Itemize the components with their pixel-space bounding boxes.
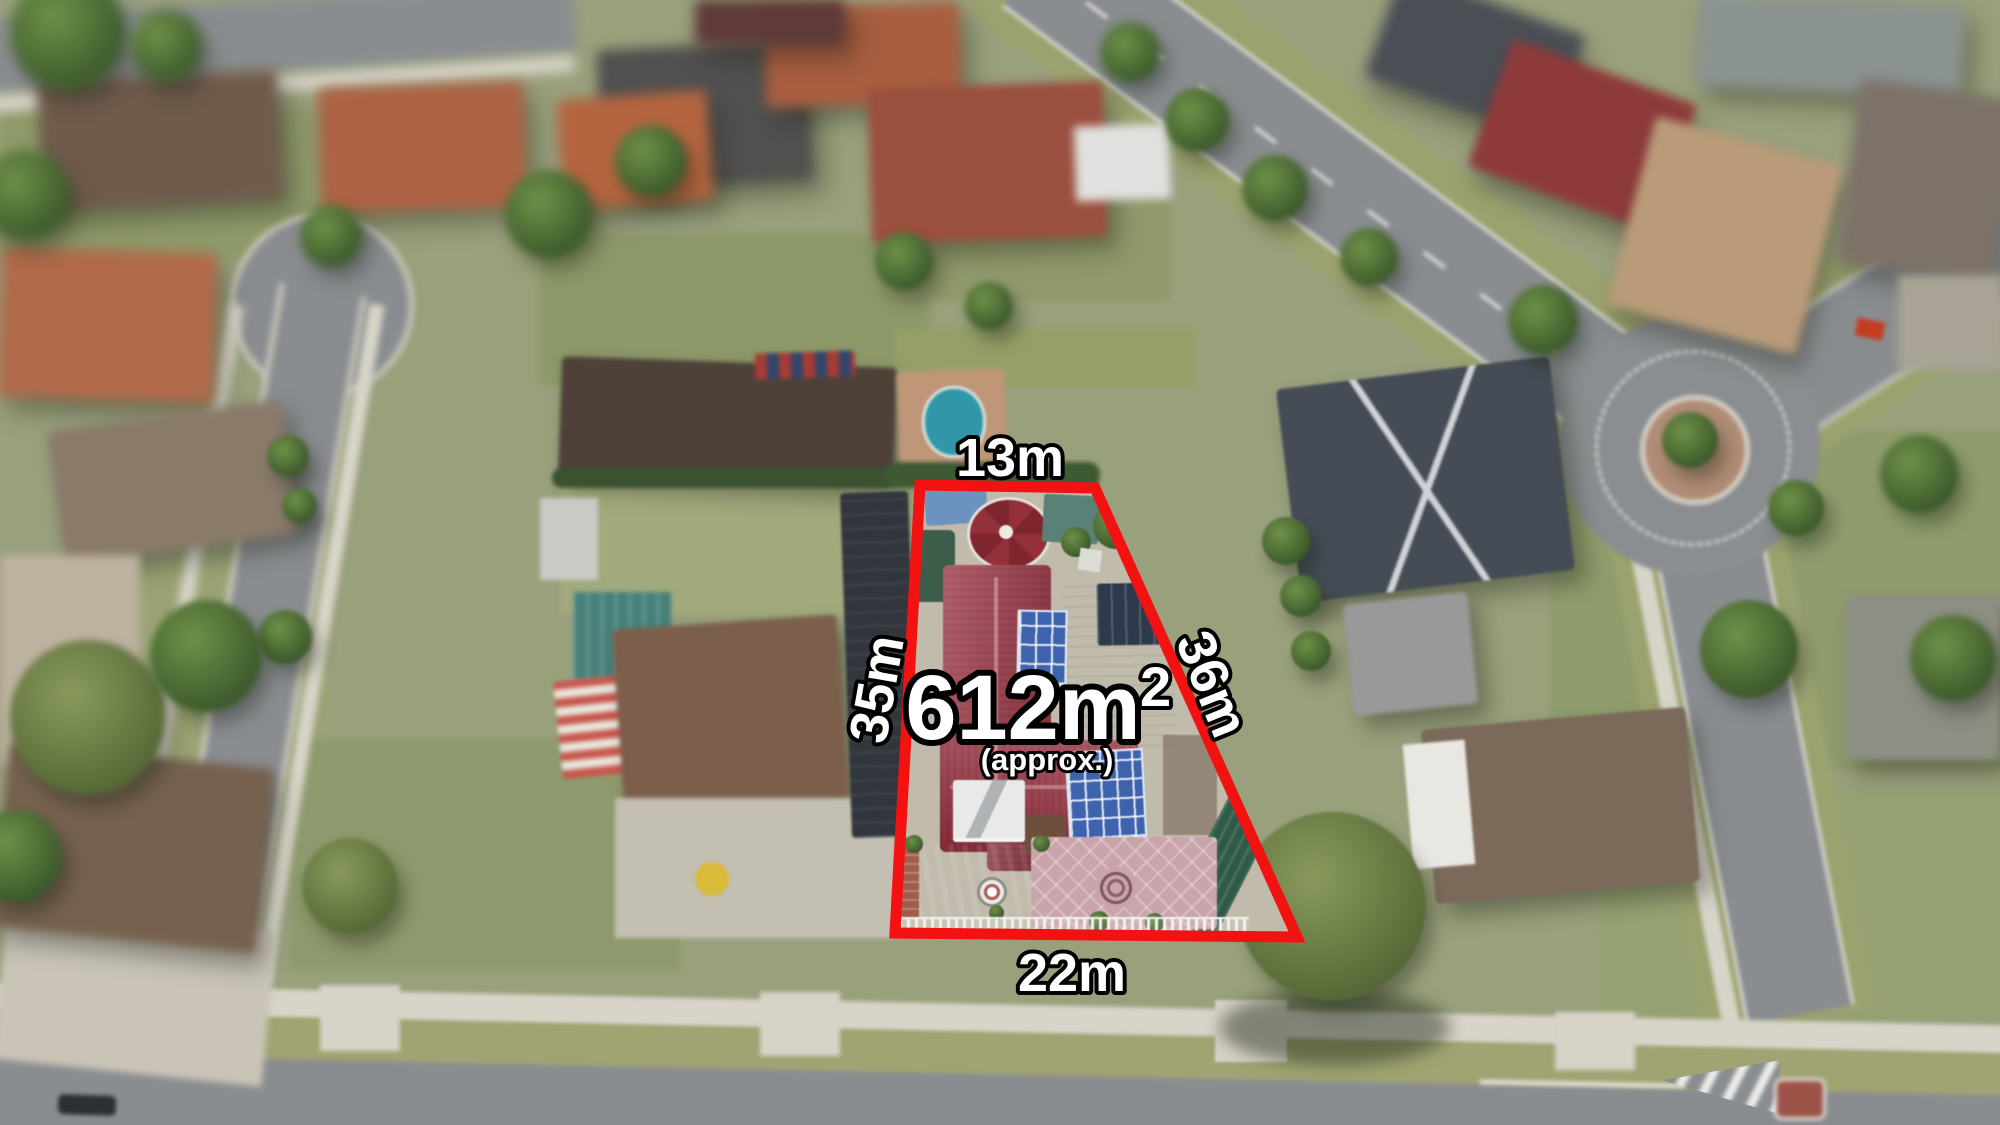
area-label-superscript: 2 [1140, 655, 1171, 718]
annotation-overlay: 13m 35m 36m 22m 612m 2 (approx.) [0, 0, 2000, 1125]
aerial-property-photo: 13m 35m 36m 22m 612m 2 (approx.) [0, 0, 2000, 1125]
dimension-label-top: 13m [956, 428, 1064, 488]
dimension-label-bottom: 22m [1018, 943, 1126, 1003]
area-label-qualifier: (approx.) [981, 742, 1114, 777]
